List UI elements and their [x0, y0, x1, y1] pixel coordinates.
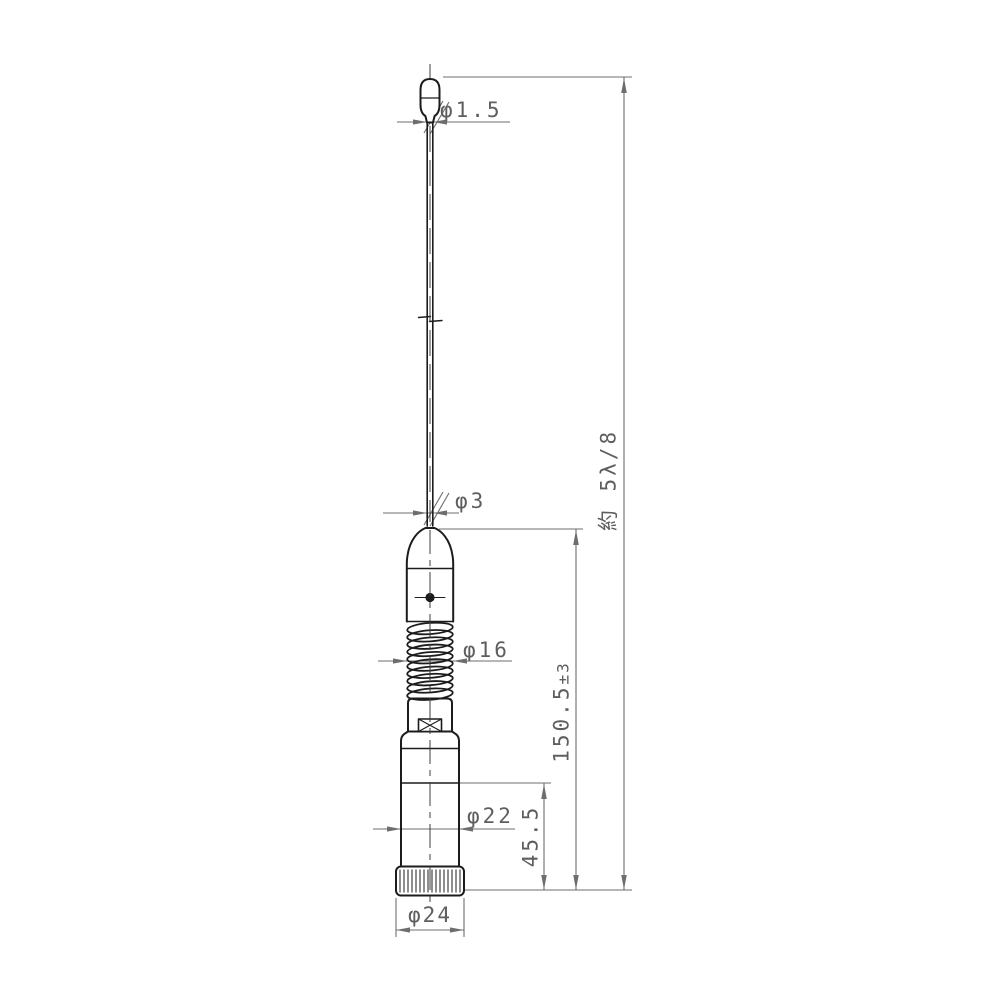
label-base-diameter: φ24	[396, 905, 464, 926]
label-overall-length: 約 5λ/8	[599, 429, 620, 531]
body-left	[401, 732, 408, 867]
drawing-canvas	[0, 0, 1000, 1000]
body-right	[452, 732, 459, 867]
label-lower-length: 150.5±3	[552, 661, 573, 762]
label-tip-diameter: φ1.5	[440, 100, 503, 121]
label-spring-diameter: φ16	[463, 640, 510, 661]
antenna-outline-drawing: φ1.5 φ3 φ16 φ22 φ24 150.5±3 45.5 約 5λ/8	[0, 0, 1000, 1000]
label-body-diameter: φ22	[467, 806, 514, 827]
label-whip-diameter: φ3	[455, 491, 486, 512]
label-base-length: 45.5	[521, 805, 542, 868]
label-lower-length-main: 150.5	[550, 685, 574, 763]
label-lower-length-tolerance: ±3	[554, 661, 573, 684]
whip-tip	[421, 79, 440, 123]
